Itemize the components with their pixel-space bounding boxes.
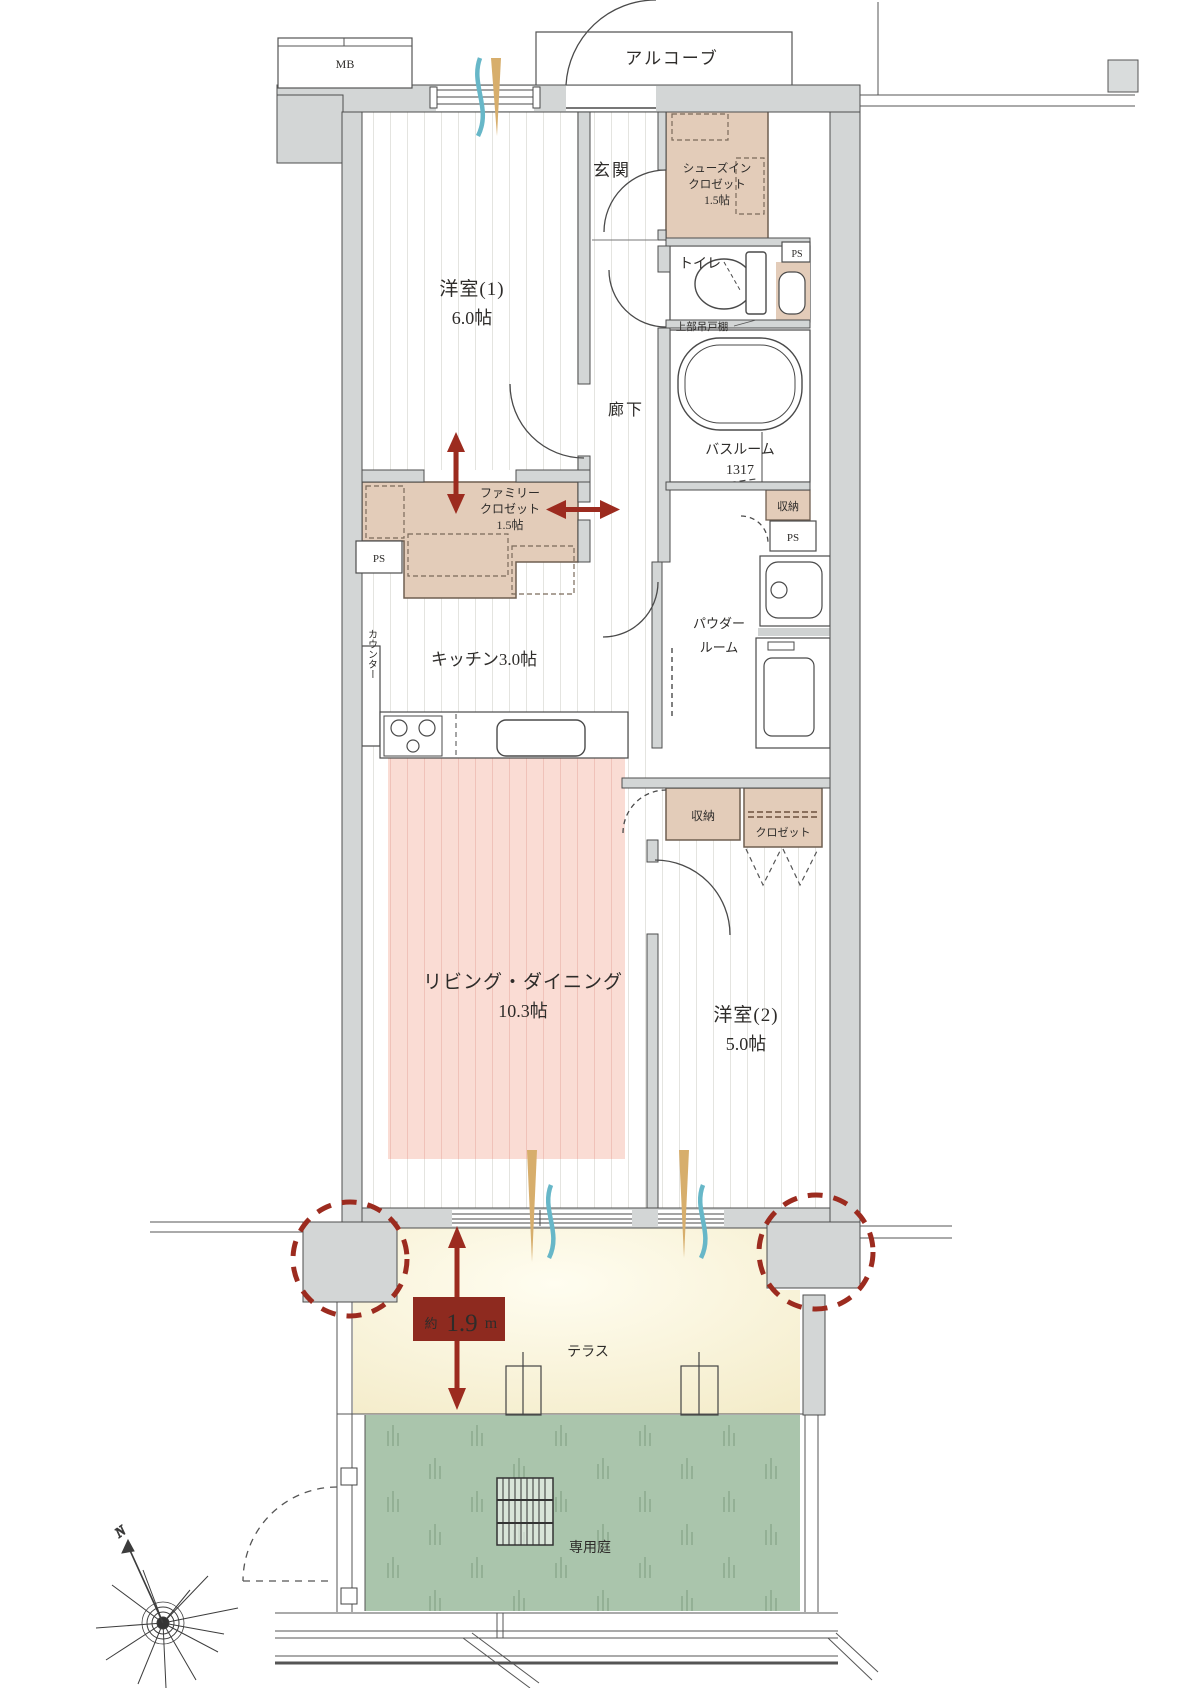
- bathroom-size: 1317: [726, 463, 754, 478]
- entrance-door-arc: [566, 0, 656, 85]
- living-dining-label: リビング・ダイニング: [423, 971, 623, 993]
- sic-label-1: シューズイン: [683, 161, 751, 175]
- washer-tap: [768, 642, 794, 650]
- living-dining-size: 10.3帖: [498, 1001, 548, 1021]
- window-bedroom2: [658, 1210, 724, 1226]
- family-closet-label-1: ファミリー: [480, 486, 540, 500]
- family-closet-label-2: クロゼット: [480, 502, 540, 516]
- living-dining-highlight: [388, 757, 625, 1159]
- vanity-faucet: [771, 582, 787, 598]
- garden-right-fence: [805, 1415, 818, 1612]
- kitchen-counter-label: カウンター: [366, 629, 378, 679]
- powder-label-2: ルーム: [700, 640, 739, 655]
- gate-post: [341, 1468, 357, 1485]
- ps-label-top: PS: [791, 249, 802, 260]
- toilet-hand-basin: [779, 272, 805, 314]
- floor-plan: 約 1.9 m N MB アルコーブ 玄関: [0, 0, 1200, 1688]
- gate-swing-arc: [243, 1487, 337, 1581]
- garden-area: [365, 1415, 800, 1611]
- pillar-top-left: [277, 95, 343, 163]
- compass-icon: N: [96, 1523, 238, 1688]
- bedroom2-size: 5.0帖: [726, 1034, 767, 1054]
- ps-label-kitchen: PS: [373, 553, 385, 565]
- garden-grate: [497, 1478, 553, 1545]
- sic-label-2: クロゼット: [688, 178, 746, 191]
- gate-post: [341, 1588, 357, 1604]
- depth-value: 1.9: [446, 1310, 477, 1337]
- wall-right: [830, 112, 860, 1222]
- entrance-opening: [566, 86, 656, 111]
- floor-plan-page: 約 1.9 m N MB アルコーブ 玄関: [0, 0, 1200, 1688]
- sic-size: 1.5帖: [704, 193, 730, 207]
- storage-label-mid: 収納: [777, 500, 799, 513]
- ps-label-mid: PS: [787, 532, 799, 544]
- entrance-label: 玄関: [593, 161, 631, 180]
- stove-burner: [391, 720, 407, 736]
- alcove-label: アルコーブ: [625, 48, 718, 68]
- family-closet-size: 1.5帖: [496, 517, 523, 532]
- wall-left: [342, 112, 362, 1222]
- depth-prefix: 約: [424, 1316, 437, 1331]
- closet-label: クロゼット: [756, 826, 811, 839]
- pillar-bottom-left: [303, 1222, 397, 1302]
- depth-unit: m: [485, 1315, 498, 1332]
- site-boundary-lines: [275, 1613, 878, 1688]
- stove-burner: [419, 720, 435, 736]
- kitchen-sink: [497, 720, 585, 756]
- compass-north-label: N: [112, 1523, 130, 1542]
- washer-pan: [764, 658, 814, 736]
- window-living: [452, 1210, 632, 1226]
- toilet-shelf-label: 上部吊戸棚: [676, 320, 729, 333]
- pillar-bottom-right: [767, 1222, 860, 1288]
- stove-burner: [407, 740, 419, 752]
- toilet-tank: [746, 252, 766, 314]
- storage-label-low: 収納: [691, 809, 715, 823]
- kitchen-label: キッチン3.0帖: [431, 650, 537, 669]
- western-room-2-floor: [658, 788, 830, 1208]
- bathtub-inner: [685, 345, 795, 423]
- mb-label: MB: [336, 57, 355, 71]
- hallway-label: 廊下: [608, 401, 644, 419]
- shoes-in-closet-area: [666, 110, 768, 240]
- powder-label-1: パウダー: [693, 616, 745, 631]
- toilet-label: トイレ: [679, 257, 721, 272]
- garden-label: 専用庭: [569, 1539, 611, 1556]
- wall-terrace-right: [803, 1295, 825, 1415]
- bedroom1-size: 6.0帖: [452, 308, 493, 328]
- bedroom2-label: 洋室(2): [713, 1004, 778, 1026]
- bathroom-label: バスルーム: [705, 443, 775, 458]
- terrace-label: テラス: [567, 1345, 609, 1360]
- bedroom1-label: 洋室(1): [439, 278, 504, 300]
